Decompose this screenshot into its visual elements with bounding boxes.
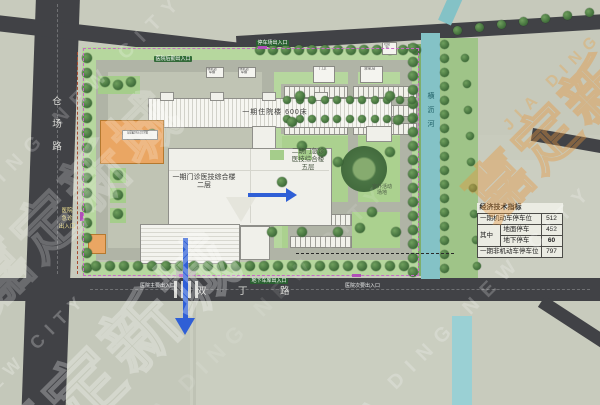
indicator-row1-value: 512 (541, 214, 562, 225)
outpatient-label-line2: 二层 (148, 182, 260, 190)
east-flow-arrow-head (286, 188, 297, 202)
tree-icon (440, 222, 449, 231)
south-char1: 双 (197, 286, 207, 297)
garage-entrance-text: 地下车库出入口 (252, 278, 287, 284)
tree-icon (464, 106, 472, 114)
tree-icon (440, 208, 449, 217)
tree-icon (440, 166, 449, 175)
tree-icon (440, 96, 449, 105)
tree-icon (440, 236, 449, 245)
tree-icon (440, 40, 449, 49)
indicator-row3-label: 地下停车 (501, 236, 541, 247)
logistics-entrance-chip: 医院后勤出入口 (154, 56, 192, 62)
canal-name-text: 横沥河 (427, 92, 434, 134)
city-block-s (190, 300, 460, 405)
tree-icon (519, 17, 528, 26)
tree-icon (440, 194, 449, 203)
outpatient-label-line1: 一期门诊医技综合楼 (148, 174, 260, 182)
road-name-south-char1: 双 (197, 283, 207, 297)
secondary-entrance-label: 医院次要出入口 (345, 282, 380, 289)
tree-icon (467, 158, 475, 166)
emergency-line1: 医院 (55, 207, 79, 215)
inpatient-label-text: 一期住院楼 600床 (242, 109, 308, 116)
parking-entrance-chip: 停车场出入口 (256, 40, 289, 46)
site-plan-canvas: 非机动车棚 非机动车棚 门卫 液氧站 垃圾站 一期住院楼 600床 一期门诊医技… (0, 0, 600, 405)
road-southeast-diagonal (538, 296, 600, 370)
main-entrance-arrow-shaft (183, 238, 188, 320)
canal-name: 横沥河 (425, 92, 435, 134)
indicator-row2-value: 452 (541, 225, 562, 236)
gate-north (258, 46, 267, 49)
road-redline-dashed (77, 52, 78, 274)
phase2-label: 二期门急诊 医技综合楼 五层 (272, 148, 344, 172)
indicator-row4-label: 一期非机动车停车位 (478, 247, 542, 258)
main-entrance-label: 医院主要出入口 (140, 282, 175, 289)
indicators-table: 经济技术指标 一期机动车停车位 512 其中 地面停车 452 地下停车 60 … (477, 203, 563, 258)
tree-icon (585, 8, 594, 17)
south-char2: 丁 (238, 286, 248, 297)
road-name-south-char2: 丁 (238, 283, 248, 297)
tree-icon (463, 80, 471, 88)
tree-icon (440, 82, 449, 91)
outpatient-label: 一期门诊医技综合楼 二层 (148, 174, 260, 190)
outdoor-label-line2: 场地 (360, 190, 404, 196)
main-entrance-text: 医院主要出入口 (140, 283, 175, 289)
canal-water (421, 33, 440, 279)
outdoor-area-label: 室外活动 场地 (360, 184, 404, 196)
tree-icon (440, 138, 449, 147)
road-name-west-text: 仓场路 (50, 96, 61, 164)
indicator-group-label: 其中 (478, 225, 501, 247)
main-entrance-arrow-head (175, 318, 195, 335)
indicator-row1-label: 一期机动车停车位 (478, 214, 542, 225)
tree-icon (475, 23, 484, 32)
east-flow-arrow-shaft (248, 193, 286, 197)
tree-icon (440, 68, 449, 77)
phase2-label-line2: 医技综合楼 (272, 156, 344, 164)
tree-icon (466, 132, 474, 140)
tree-icon (440, 152, 449, 161)
secondary-entrance-text: 医院次要出入口 (345, 283, 380, 289)
tree-icon (440, 250, 449, 259)
indicator-row3-value: 60 (541, 236, 562, 247)
inpatient-label: 一期住院楼 600床 (195, 107, 355, 117)
south-char3: 路 (280, 286, 290, 297)
tree-icon (440, 180, 449, 189)
phase-line-dashdot (296, 253, 454, 254)
tree-icon (440, 54, 449, 63)
emergency-entrance-label: 医院 急诊 出入口 (55, 207, 79, 231)
tree-icon (541, 14, 550, 23)
site-boundary-dashed (83, 48, 419, 276)
tree-icon (461, 54, 469, 62)
emergency-line2: 急诊 (55, 215, 79, 223)
garage-entrance-chip: 地下车库出入口 (250, 278, 288, 284)
tree-icon (440, 264, 449, 273)
phase2-label-line3: 五层 (272, 164, 344, 172)
tree-icon (563, 11, 572, 20)
pond-southeast (452, 316, 472, 405)
gate-emergency (80, 212, 83, 221)
emergency-line3: 出入口 (55, 223, 79, 231)
gate-secondary (352, 274, 361, 277)
indicators-title: 经济技术指标 (478, 203, 563, 214)
tree-icon (440, 110, 449, 119)
logistics-entrance-text: 医院后勤出入口 (156, 56, 191, 62)
phase2-label-line1: 二期门急诊 (272, 148, 344, 156)
road-name-west: 仓场路 (48, 96, 62, 164)
tree-icon (440, 124, 449, 133)
indicator-row2-label: 地面停车 (501, 225, 541, 236)
tree-icon (497, 20, 506, 29)
road-name-south-char3: 路 (280, 283, 290, 297)
road-south-centerline (90, 289, 590, 290)
tree-icon (473, 262, 481, 270)
indicator-row4-value: 797 (541, 247, 562, 258)
tree-icon (453, 26, 462, 35)
tree-icon (469, 184, 477, 192)
parking-entrance-text: 停车场出入口 (258, 40, 288, 46)
